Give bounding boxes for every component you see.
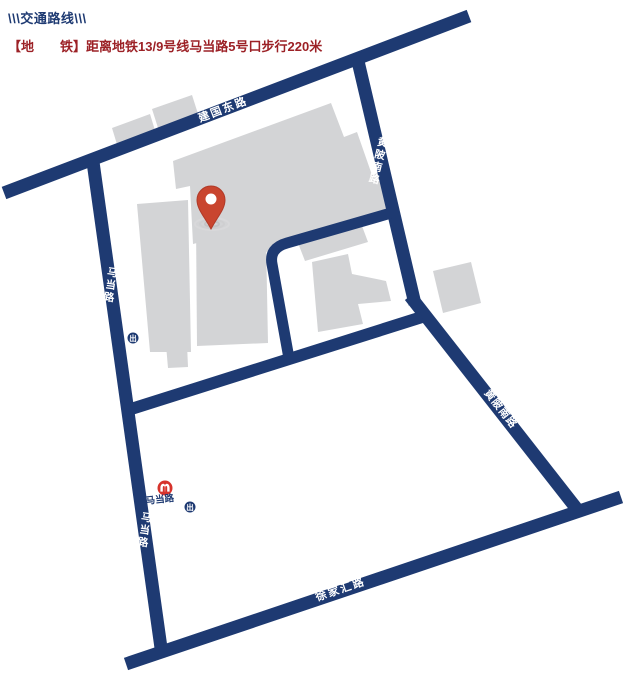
building-west-block <box>137 200 191 352</box>
station-name-label: 马当路 <box>145 492 175 507</box>
metro-exit-icon: 出 <box>185 502 196 513</box>
exit-glyph: 出 <box>129 333 137 343</box>
road-xujiahui <box>126 497 621 664</box>
metro-exit-icon: 出 <box>128 333 139 344</box>
building-notch <box>249 104 270 128</box>
transit-map: 建国东路 黄陂南路 黄陂南路 马当路 马当路 徐家汇路 出 出 马当路 <box>0 0 640 694</box>
metro-station-marker: 马当路 <box>145 481 175 507</box>
road-label-huangpi-south-lower: 黄陂南路 <box>482 387 521 431</box>
metro-distance-note: 【地 铁】距离地铁13/9号线马当路5号口步行220米 <box>8 36 322 55</box>
page-title: \\\交通路线\\\ <box>8 8 87 27</box>
building-center-tab <box>166 344 188 368</box>
building-east-small <box>433 262 481 313</box>
road-label-xujiahui: 徐家汇路 <box>313 574 368 604</box>
exit-glyph: 出 <box>186 502 194 512</box>
road-label-jianguo-east: 建国东路 <box>196 93 250 125</box>
building-courtyard-t <box>312 254 391 332</box>
building-center-block <box>196 222 268 346</box>
